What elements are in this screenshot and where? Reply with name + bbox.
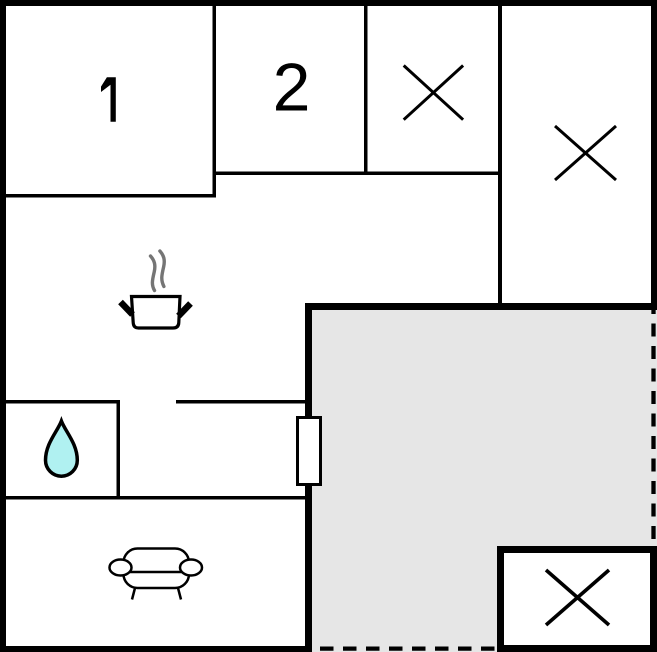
- svg-text:2: 2: [273, 50, 311, 126]
